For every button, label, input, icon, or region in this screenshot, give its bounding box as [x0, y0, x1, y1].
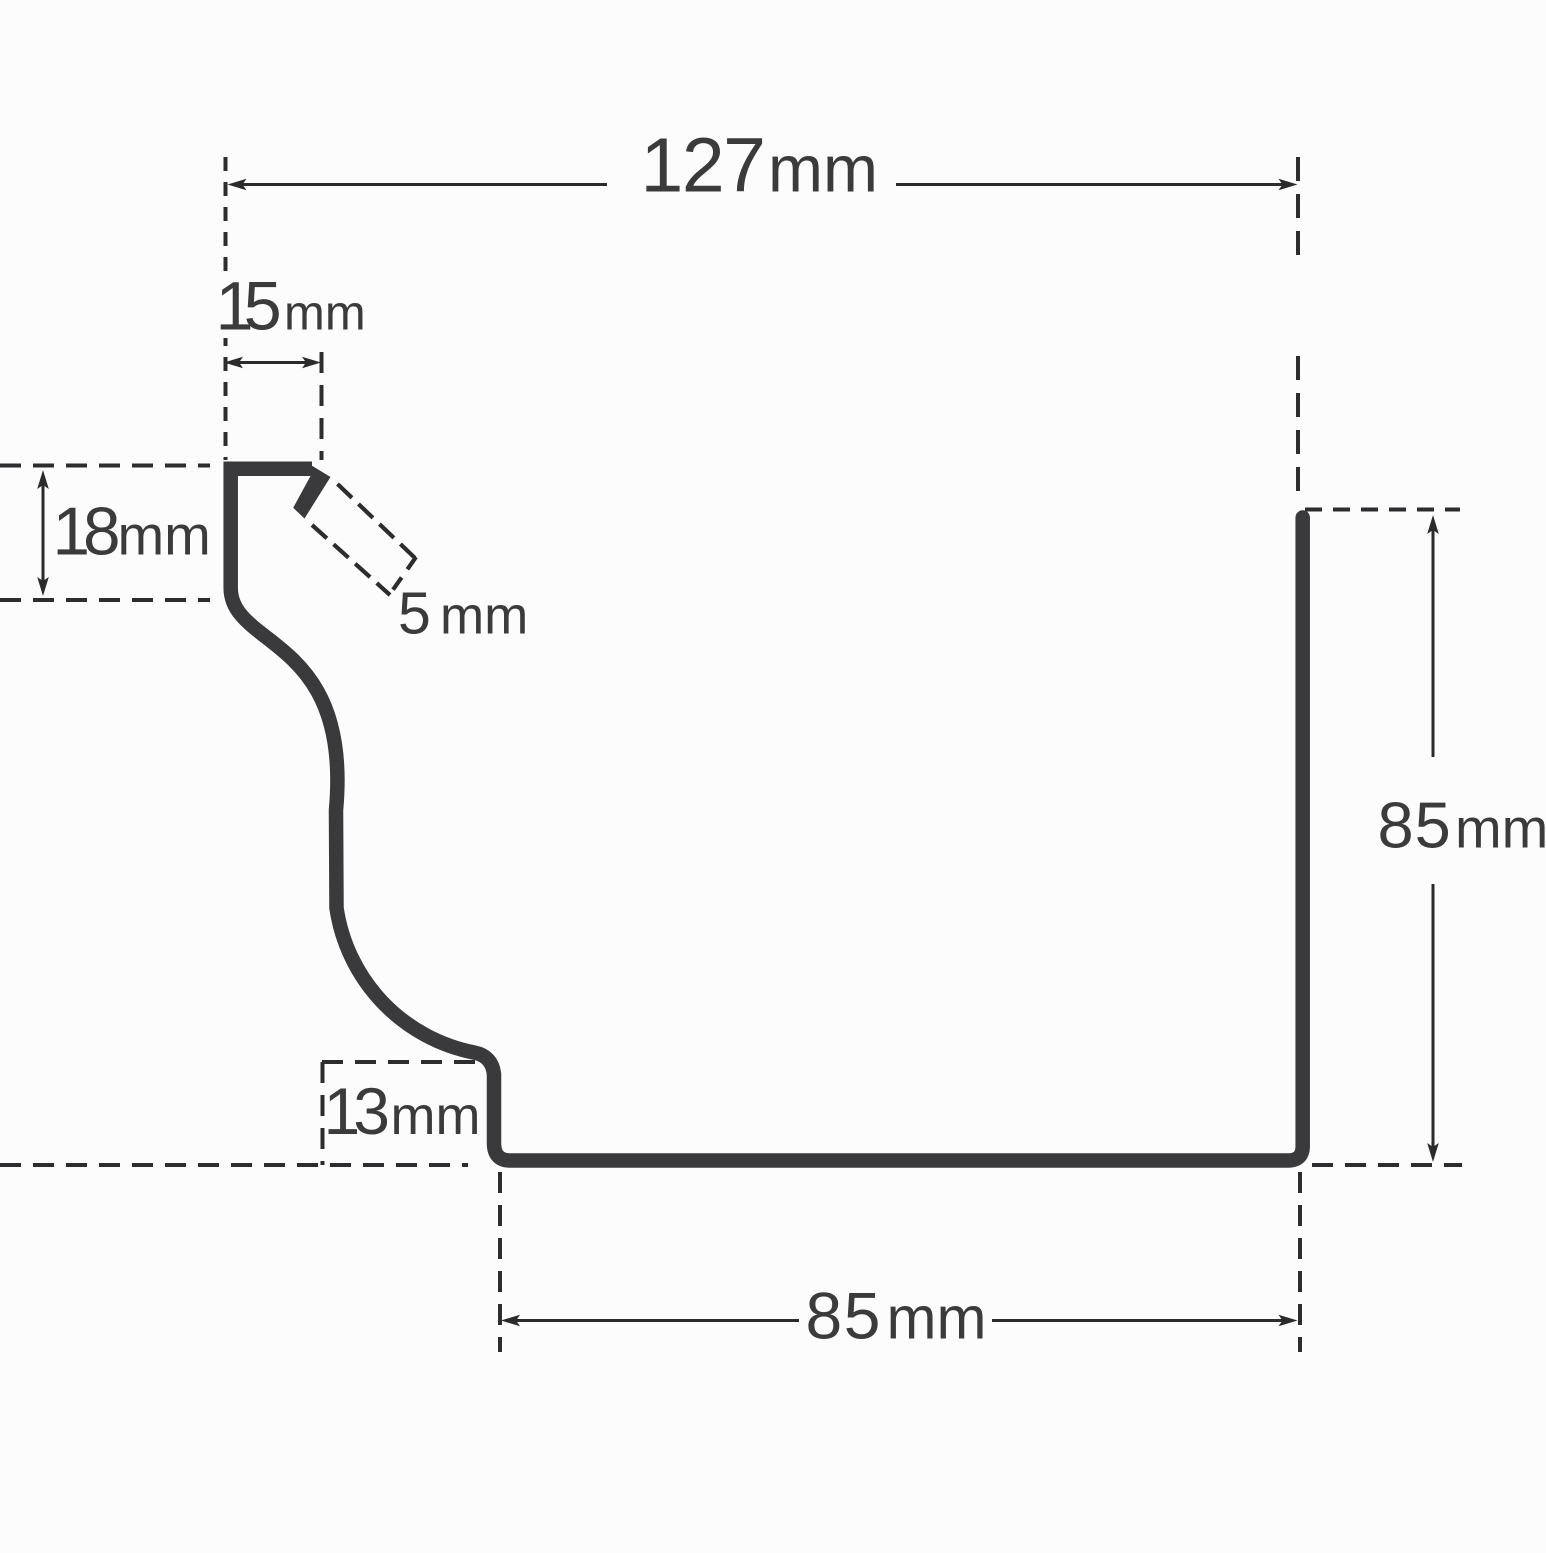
svg-text:mm: mm — [768, 132, 878, 206]
svg-text:5: 5 — [398, 581, 431, 647]
svg-text:13: 13 — [324, 1074, 388, 1148]
svg-text:mm: mm — [887, 1285, 987, 1352]
svg-text:mm: mm — [391, 1086, 481, 1146]
svg-text:mm: mm — [284, 287, 366, 341]
svg-text:mm: mm — [1455, 797, 1546, 860]
svg-text:18: 18 — [53, 495, 119, 570]
svg-text:85: 85 — [806, 1279, 882, 1353]
svg-text:15: 15 — [216, 268, 280, 345]
svg-text:mm: mm — [118, 504, 211, 567]
svg-text:mm: mm — [440, 587, 528, 646]
svg-text:85: 85 — [1378, 789, 1452, 862]
svg-text:127: 127 — [641, 123, 765, 209]
